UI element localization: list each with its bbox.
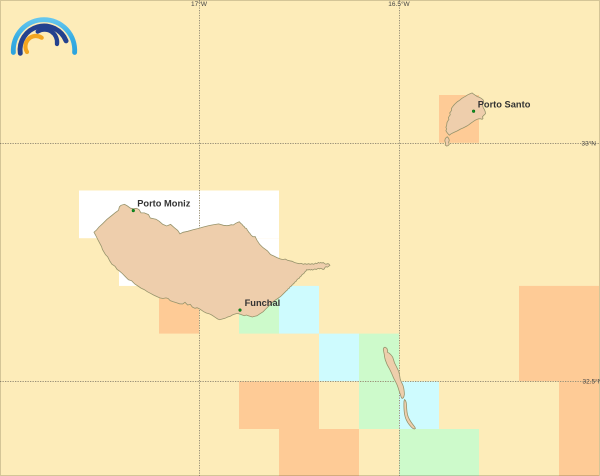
svg-text:17°W: 17°W: [191, 0, 208, 8]
svg-text:33°N: 33°N: [581, 140, 596, 148]
svg-text:Porto Moniz: Porto Moniz: [137, 198, 191, 208]
svg-text:Funchal: Funchal: [245, 298, 281, 308]
svg-text:16.5°W: 16.5°W: [388, 0, 410, 8]
svg-text:32.5°N: 32.5°N: [583, 378, 600, 386]
svg-text:Porto Santo: Porto Santo: [478, 99, 531, 109]
